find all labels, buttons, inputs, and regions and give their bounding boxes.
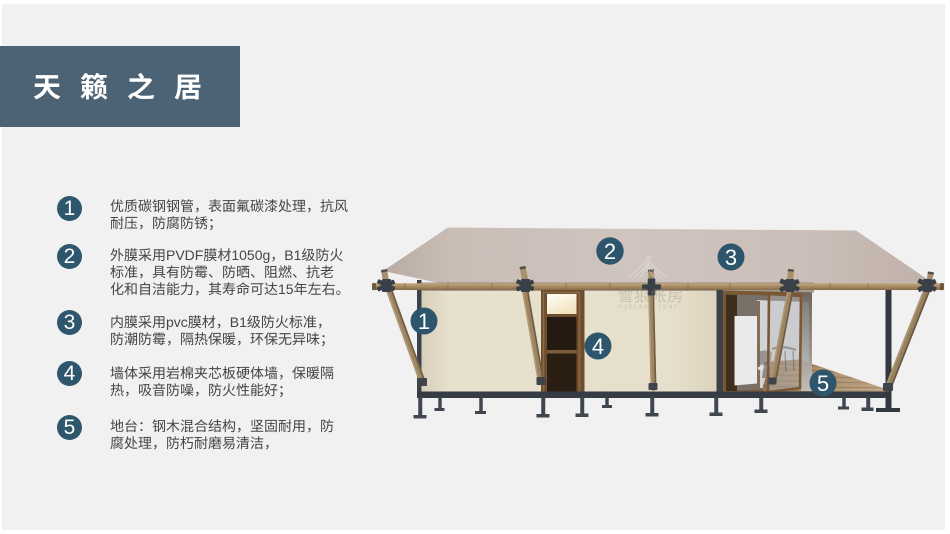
svg-text:3: 3 [725, 245, 737, 270]
svg-text:2: 2 [604, 239, 616, 264]
svg-text:4: 4 [592, 334, 604, 359]
svg-text:1: 1 [418, 309, 430, 334]
svg-text:5: 5 [817, 371, 829, 396]
svg-text:雪狼帐房: 雪狼帐房 [618, 283, 684, 307]
svg-text:XUELANG TENT: XUELANG TENT [618, 305, 679, 311]
